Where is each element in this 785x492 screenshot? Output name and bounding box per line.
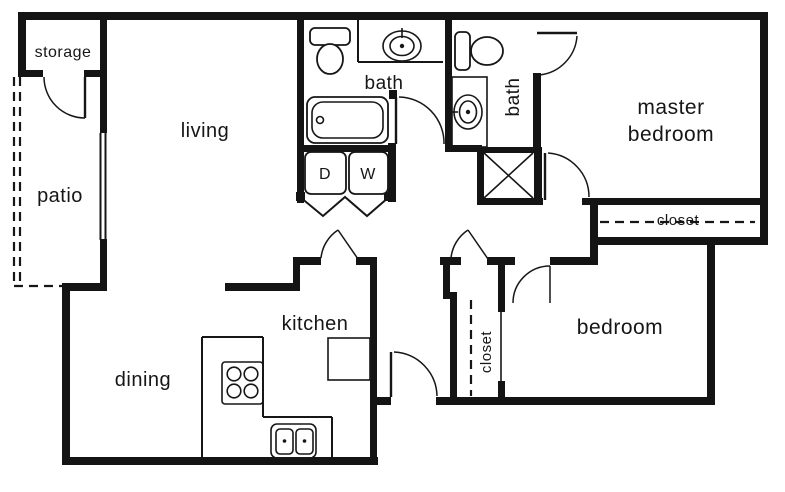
stove-4-burner xyxy=(222,362,263,404)
wall-hall-a xyxy=(297,257,321,265)
wall-masterbath-left xyxy=(445,20,452,148)
refrigerator xyxy=(328,338,370,380)
kitchen-double-sink xyxy=(271,424,316,458)
floor-plan: storage patio living bath bath master be… xyxy=(0,0,785,492)
wall-hallcloset-right-low xyxy=(498,381,505,397)
sink-master-bath xyxy=(451,77,487,147)
wall-hall-b xyxy=(356,257,377,265)
room-label-master-closet: closet xyxy=(657,212,700,229)
wall-mainbath-left xyxy=(297,20,304,203)
patio-sliding-door xyxy=(101,133,106,240)
wall-dw-top xyxy=(297,145,396,152)
master-bath-door xyxy=(537,33,577,75)
wall-living-west-lower xyxy=(100,239,107,291)
wall-masterbath-right xyxy=(533,73,541,149)
toilet-master-bath xyxy=(455,32,503,70)
room-label-master-bath: bath xyxy=(503,78,524,117)
wall-right-master xyxy=(760,12,768,245)
wall-dining-left xyxy=(62,283,70,465)
partitions-and-counters xyxy=(101,20,534,457)
wall-bottom-right-b xyxy=(436,397,715,405)
wall-right-bedroom xyxy=(707,237,715,405)
wall-top-exterior xyxy=(18,12,768,20)
wall-hallcloset-left xyxy=(450,292,457,397)
appliance-label-washer: W xyxy=(360,166,376,183)
wall-shower-top xyxy=(477,147,542,153)
wall-hallcloset-right-up xyxy=(498,257,505,312)
room-label-storage: storage xyxy=(35,44,92,61)
wall-bottom-left xyxy=(62,457,378,465)
room-label-main-bath: bath xyxy=(365,73,404,94)
room-label-master-line2: bedroom xyxy=(628,123,714,146)
wall-storage-bottom-a xyxy=(18,70,43,77)
room-label-bedroom: bedroom xyxy=(577,316,663,339)
wall-bottom-right-a xyxy=(377,397,391,405)
wall-shower-bottom xyxy=(477,198,543,205)
kitchen-hall-door xyxy=(321,230,358,259)
room-label-kitchen: kitchen xyxy=(282,313,349,335)
wall-dining-right-seg xyxy=(225,283,300,291)
bedroom-door xyxy=(513,266,550,303)
wall-kitchen-right xyxy=(370,257,377,465)
storage-door xyxy=(44,77,85,118)
floor-plan-svg: storage patio living bath bath master be… xyxy=(0,0,785,492)
toilet-main-bath xyxy=(310,28,350,74)
wall-master-closet-bottom xyxy=(590,237,763,245)
room-label-dining: dining xyxy=(115,369,171,391)
wall-bedroom-top xyxy=(550,257,594,265)
wall-shower-left xyxy=(477,147,484,204)
sink-main-bath xyxy=(383,28,421,61)
room-label-master-line1: master xyxy=(637,96,704,119)
hall-closet-door xyxy=(451,230,488,259)
wall-vanity-bottom xyxy=(445,145,482,152)
room-label-patio: patio xyxy=(37,185,83,207)
room-label-living: living xyxy=(181,120,230,142)
entry-door xyxy=(391,352,437,397)
fixtures xyxy=(222,28,503,458)
wall-master-closet-top xyxy=(582,198,763,205)
main-bath-door xyxy=(396,97,444,144)
wall-storage-left xyxy=(18,12,26,77)
wall-vestibule-right xyxy=(590,198,598,265)
wall-shower-right xyxy=(534,147,542,205)
bathtub xyxy=(307,97,388,143)
wall-living-west-upper xyxy=(100,20,107,133)
appliance-label-dryer: D xyxy=(319,166,331,183)
shower-x xyxy=(484,153,533,198)
dw-bifold-doors xyxy=(300,197,389,216)
room-label-hall-closet: closet xyxy=(478,331,495,374)
master-bedroom-door xyxy=(545,153,589,200)
